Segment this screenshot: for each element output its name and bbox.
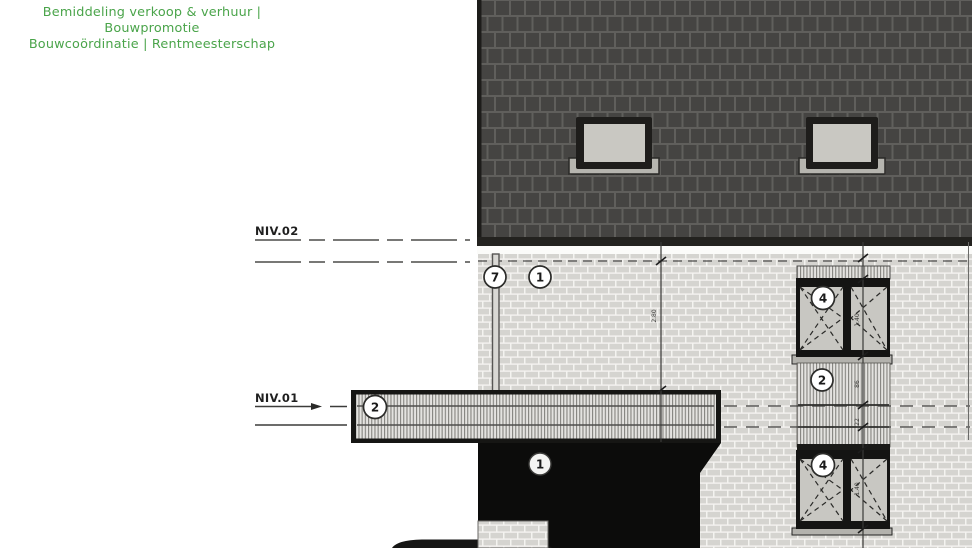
window-unit-upper bbox=[792, 266, 892, 364]
dimension-value: 1.40 bbox=[854, 313, 861, 327]
roof-window-right bbox=[799, 117, 885, 174]
dimension-value: 2.80 bbox=[651, 309, 658, 323]
bubble-label: 1 bbox=[536, 458, 544, 472]
annotation-bubble-7: 7 bbox=[484, 266, 506, 288]
canopy-cladding bbox=[356, 395, 716, 439]
canopy bbox=[351, 390, 721, 443]
annotation-bubble-2-canopy: 2 bbox=[364, 396, 387, 419]
niv01-label: NIV.01 bbox=[255, 391, 299, 405]
window-unit-lower bbox=[792, 450, 892, 535]
lower-window-sill bbox=[792, 528, 892, 535]
annotation-bubble-1-entrance: 1 bbox=[529, 453, 551, 475]
bubble-label: 7 bbox=[491, 271, 499, 285]
dimension-value: 22 bbox=[854, 418, 861, 426]
bubble-label: 1 bbox=[536, 271, 544, 285]
niv01-arrowhead bbox=[311, 403, 322, 410]
brick-pier bbox=[478, 521, 548, 548]
roof-window-left bbox=[569, 117, 659, 174]
bubble-label: 2 bbox=[371, 401, 379, 415]
spandrel-panel-bottom-edge bbox=[797, 444, 890, 451]
annotation-bubble-4-lower: 4 bbox=[812, 454, 835, 477]
bubble-label: 4 bbox=[819, 292, 827, 306]
elevation-svg: 2.80 1.40 86 22 1.40 NIV.02 NIV.01 7 bbox=[0, 0, 972, 548]
bubble-label: 4 bbox=[819, 459, 827, 473]
annotation-bubble-2-panel: 2 bbox=[811, 369, 833, 391]
niv02-label: NIV.02 bbox=[255, 224, 299, 238]
cladding-band-above-upper-window bbox=[797, 266, 890, 279]
bubble-label: 2 bbox=[818, 374, 826, 388]
annotation-bubble-1-upper: 1 bbox=[529, 266, 551, 288]
annotation-bubble-4-upper: 4 bbox=[812, 287, 835, 310]
roof-window-right-glass bbox=[813, 124, 871, 162]
level-marker-niv02: NIV.02 bbox=[255, 224, 470, 262]
roof-verge-edge bbox=[477, 0, 482, 238]
dimension-value: 86 bbox=[854, 380, 861, 388]
roof-window-left-glass bbox=[584, 124, 645, 162]
roof-eave-edge bbox=[477, 237, 972, 246]
roof bbox=[477, 0, 972, 246]
gutter-band bbox=[477, 246, 972, 254]
elevation-drawing-canvas: Bemiddeling verkoop & verhuur | Bouwprom… bbox=[0, 0, 972, 548]
roof-tiles bbox=[481, 0, 972, 238]
dimension-value: 1.40 bbox=[854, 482, 861, 496]
level-marker-niv01: NIV.01 bbox=[255, 391, 347, 425]
